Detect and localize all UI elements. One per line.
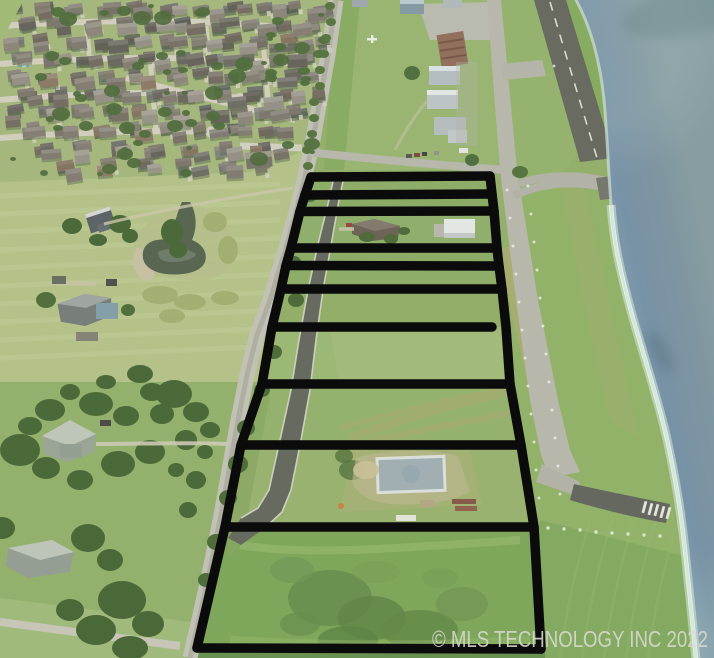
svg-text:© MLS TECHNOLOGY INC 2022: © MLS TECHNOLOGY INC 2022 [432, 626, 708, 652]
